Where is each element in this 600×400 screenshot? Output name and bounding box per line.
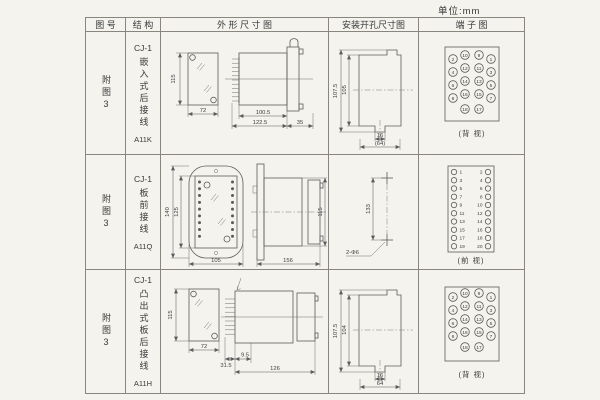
terminal-pin [451,218,456,223]
terminal-pin [451,177,456,182]
terminal-number: 20 [477,243,483,249]
terminal-number: 16 [462,91,468,97]
terminal-pin [451,243,456,248]
terminal-diagram-rear-view-a11k: (背 视) 210914121136141358161571817 [419,33,524,154]
side-view: 100.5 122.5 35 [225,38,313,128]
terminal-number: 17 [476,106,482,112]
terminal-number: 16 [477,227,483,233]
model-code-row2: A11Q [134,242,153,251]
view-label: (背 视) [458,369,485,379]
header-outline-dims: 外 形 尺 寸 图 [161,18,329,32]
figure-no-row3: 附图3 [101,313,110,350]
structure-cell-row3: CJ-1 凸出式板后接线 A11H [126,270,161,393]
terminal-pin [451,210,456,215]
terminal-number: 1 [490,295,493,301]
terminal-pin [451,227,456,232]
terminal-number: 10 [462,52,468,58]
terminal-number: 7 [460,194,463,200]
terminal-number: 7 [490,95,493,101]
terminal-pin [451,194,456,199]
header-structure: 结 构 [126,18,161,32]
outline-drawing-a11k: 115 72 1 [161,33,329,154]
outline-cell-row2: 140 125 105 156 [161,155,329,270]
figure-no-row2: 附图3 [101,194,110,231]
terminal-number: 3 [490,69,493,75]
outline-drawing-a11q: 140 125 105 156 [161,156,329,269]
terminal-number: 4 [452,69,455,75]
terminal-pin [485,243,490,248]
dim-height: 115 [168,310,174,319]
model-row1: CJ-1 [134,43,152,53]
front-view: 115 72 [171,53,218,117]
terminal-diagram-front-view-a11q: (前 视) 1234567891011121314151617181920 [419,156,524,269]
outline-drawing-a11h: 115 72 31.5 [161,271,329,392]
dim-slot-width: 16 [376,133,382,139]
terminal-number: 8 [480,194,483,200]
terminal-number: 6 [480,186,483,192]
terminal-diagram-rear-view-a11h: (背 视) 210914121136141358161571817 [419,271,524,392]
dim-flange: 35 [296,120,302,126]
terminal-pin [451,235,456,240]
header-figure-no: 图 号 [86,18,126,32]
terminal-number: 18 [477,235,483,241]
terminal-number: 13 [476,317,482,323]
install-cell-row3: 107.5 104 16 64 [329,270,419,393]
terminal-number: 6 [452,82,455,88]
dim-body-length: 100.5 [255,110,270,116]
terminal-number: 3 [490,308,493,314]
dim-width: 105 [211,258,221,264]
dim-hole-distance: 133 [366,204,372,214]
install-cell-row2: 133 2-Φ6 [329,155,419,270]
terminal-number: 12 [462,65,468,71]
dim-span-width: 64 [376,381,383,387]
dim-gap: 9.5 [240,353,248,359]
hole-callout: 2-Φ6 [346,250,359,256]
spec-table: 图 号 结 构 外 形 尺 寸 图 安装开孔尺寸图 端 子 图 附图3 CJ-1… [85,17,525,394]
terminal-number: 11 [460,210,465,216]
terminal-number: 4 [480,177,483,183]
terminal-pin [485,169,490,174]
terminal-number: 15 [476,330,482,336]
dim-inner-height: 105 [342,85,348,95]
terminal-number: 16 [462,330,468,336]
terminal-number: 11 [477,65,482,71]
dim-width: 72 [200,344,206,350]
dim-side-length: 156 [283,258,293,264]
model-row2: CJ-1 [134,174,152,184]
figure-no-cell-row2: 附图3 [86,155,126,270]
terminal-number: 2 [480,169,483,175]
figure-no-row1: 附图3 [101,75,110,112]
terminal-pin [485,185,490,190]
structure-desc-row2: 板前接线 [139,188,148,236]
terminal-pin [485,227,490,232]
terminal-number: 15 [476,91,482,97]
terminal-pin [451,202,456,207]
terminal-cell-row3: (背 视) 210914121136141358161571817 [419,270,524,393]
terminal-number: 11 [477,304,482,310]
dim-inner-height: 104 [342,324,348,334]
dim-height: 115 [171,74,177,83]
terminal-number: 1 [490,56,493,62]
structure-desc-row3: 凸出式板后接线 [139,289,148,373]
terminal-number: 8 [452,95,455,101]
dim-width: 72 [199,108,205,114]
terminal-pin [485,202,490,207]
view-label: (前 视) [457,255,484,265]
install-hole-drawing-a11k: 107.5 105 16 (64) [329,33,419,154]
terminal-number: 10 [477,202,483,208]
dim-side-height: 115 [318,207,324,216]
terminal-number: 14 [462,317,468,323]
terminal-number: 1 [460,169,463,175]
dim-span-width: (64) [374,141,384,147]
terminal-number: 12 [462,304,468,310]
terminal-number: 19 [460,243,466,249]
model-row3: CJ-1 [134,275,152,285]
terminal-pin [485,235,490,240]
install-hole-drawing-a11q: 133 2-Φ6 [329,156,419,269]
terminal-pin [485,177,490,182]
terminal-pin [485,218,490,223]
dim-outer-height: 107.5 [333,83,339,98]
terminal-number: 15 [460,227,466,233]
front-view: 140 125 105 [165,166,243,267]
terminal-number: 9 [460,202,463,208]
terminal-number: 10 [462,291,468,297]
structure-cell-row2: CJ-1 板前接线 A11Q [126,155,161,270]
terminal-number: 12 [477,210,483,216]
outline-cell-row1: 115 72 1 [161,32,329,155]
figure-no-cell-row3: 附图3 [86,270,126,393]
terminal-cell-row2: (前 视) 1234567891011121314151617181920 [419,155,524,270]
terminal-number: 2 [452,56,455,62]
terminal-number: 17 [460,235,466,241]
model-code-row3: A11H [134,379,152,388]
structure-desc-row1: 嵌入式后接线 [139,57,148,129]
terminal-number: 14 [477,219,483,225]
dim-total-length: 122.5 [252,120,267,126]
terminal-pin [485,210,490,215]
dim-slot-width: 16 [376,373,382,379]
dim-pin-length: 31.5 [220,363,231,369]
front-view: 115 72 [168,289,219,353]
figure-no-cell-row1: 附图3 [86,32,126,155]
model-code-row1: A11K [134,135,152,144]
view-label: (背 视) [458,128,485,138]
terminal-number: 13 [476,78,482,84]
terminal-number: 2 [452,295,455,301]
terminal-number: 9 [478,291,481,297]
terminal-number: 9 [478,52,481,58]
terminal-number: 4 [452,308,455,314]
terminal-number: 13 [460,219,466,225]
side-view: 156 115 [251,164,327,267]
terminal-pin [485,194,490,199]
install-cell-row1: 107.5 105 16 (64) [329,32,419,155]
dim-outer-height: 140 [165,207,171,217]
unit-note: 单位:mm [438,3,480,17]
install-hole-drawing-a11h: 107.5 104 16 64 [329,271,419,392]
side-view: 31.5 9.5 126 [220,278,323,375]
terminal-number: 18 [462,106,468,112]
terminal-number: 3 [460,177,463,183]
dim-inner-height: 125 [174,207,180,217]
terminal-number: 18 [462,345,468,351]
header-install-dims: 安装开孔尺寸图 [329,18,419,32]
terminal-number: 6 [452,321,455,327]
dim-outer-height: 107.5 [333,324,339,339]
terminal-number: 7 [490,334,493,340]
document-page: 单位:mm 图 号 结 构 外 形 尺 寸 图 安装开孔尺寸图 端 子 图 附图… [0,0,600,400]
terminal-pin [451,169,456,174]
terminal-number: 8 [452,334,455,340]
terminal-cell-row1: (背 视) 210914121136141358161571817 [419,32,524,155]
terminal-number: 5 [460,186,463,192]
terminal-number: 5 [490,82,493,88]
terminal-number: 5 [490,321,493,327]
structure-cell-row1: CJ-1 嵌入式后接线 A11K [126,32,161,155]
terminal-number: 17 [476,345,482,351]
dim-body-length: 126 [270,366,280,372]
terminal-pin [451,185,456,190]
header-terminal-diagram: 端 子 图 [419,18,524,32]
terminal-number: 14 [462,78,468,84]
outline-cell-row3: 115 72 31.5 [161,270,329,393]
